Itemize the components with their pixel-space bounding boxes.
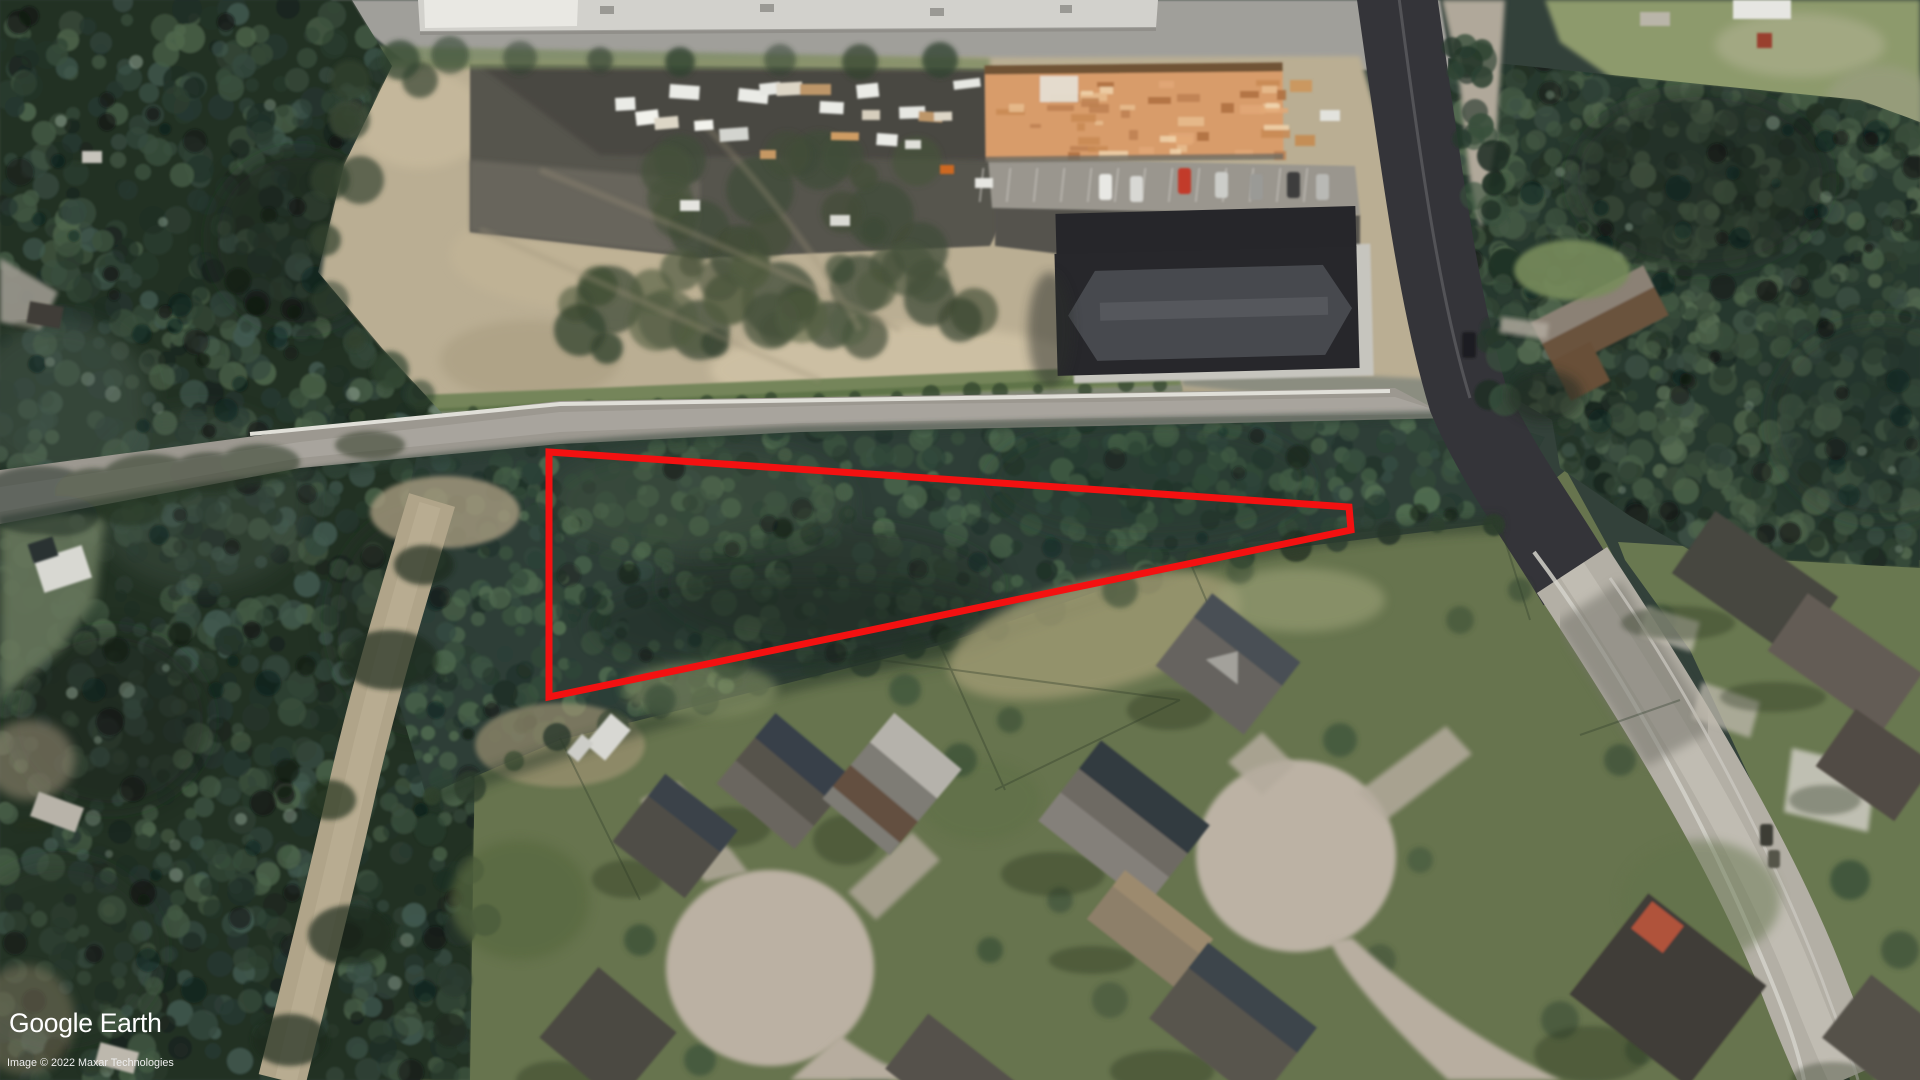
svg-text:Google Earth: Google Earth (9, 1008, 162, 1038)
svg-text:Image © 2022 Maxar Technologie: Image © 2022 Maxar Technologies (7, 1057, 174, 1069)
